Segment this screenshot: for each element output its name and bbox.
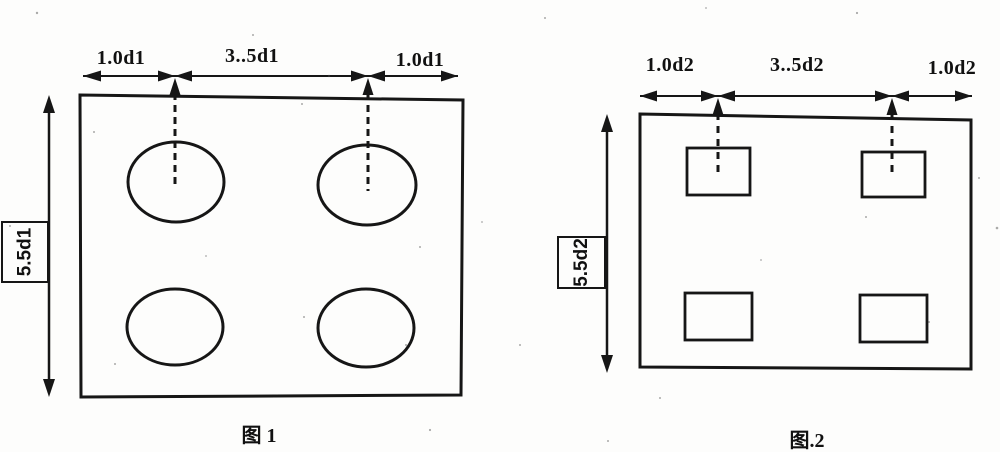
figure2-dim-top-left-label: 1.0d2 xyxy=(646,54,695,76)
arrowhead-left-icon xyxy=(892,91,909,102)
arrowhead-up-icon xyxy=(170,78,181,95)
arrowhead-left-icon xyxy=(640,91,657,102)
figure2-hole-bottom-left xyxy=(685,293,752,340)
arrowhead-up-icon xyxy=(713,98,724,115)
arrowhead-right-icon xyxy=(158,71,175,82)
arrowhead-down-icon xyxy=(43,379,55,397)
figure2-caption: 图.2 xyxy=(790,429,825,452)
figure1-side-dim-label: 5.5d1 xyxy=(15,227,36,276)
arrowhead-up-icon xyxy=(43,95,55,113)
figure-1: 1.0d1 3..5d1 1.0d1 5.5d1 图 1 xyxy=(2,45,463,447)
arrowhead-right-icon xyxy=(875,91,892,102)
drawing-canvas: 1.0d1 3..5d1 1.0d1 5.5d1 图 1 xyxy=(0,0,1000,452)
arrowhead-down-icon xyxy=(601,355,613,373)
arrowhead-left-icon xyxy=(368,71,385,82)
scan-noise-specks xyxy=(9,7,998,442)
arrowhead-left-icon xyxy=(718,91,735,102)
arrowhead-right-icon xyxy=(701,91,718,102)
figure1-hole-bottom-left xyxy=(127,289,223,365)
figure1-hole-bottom-right xyxy=(318,289,414,367)
arrowhead-up-icon xyxy=(601,114,613,132)
arrowhead-up-icon xyxy=(887,98,898,115)
figure2-dim-top-middle-label: 3..5d2 xyxy=(770,54,824,76)
arrowhead-left-icon xyxy=(175,71,192,82)
figure2-hole-bottom-right xyxy=(860,295,927,342)
arrowhead-up-icon xyxy=(363,78,374,95)
scanned-patent-drawing: 1.0d1 3..5d1 1.0d1 5.5d1 图 1 xyxy=(0,0,1000,452)
figure1-dim-top-left-label: 1.0d1 xyxy=(97,47,146,69)
figure2-dim-top-right-label: 1.0d2 xyxy=(928,57,977,79)
arrowhead-left-icon xyxy=(83,71,101,82)
figure1-caption: 图 1 xyxy=(242,424,277,447)
figure2-side-dim-label: 5.5d2 xyxy=(571,238,592,287)
arrowhead-right-icon xyxy=(441,71,458,82)
figure-2: 1.0d2 3..5d2 1.0d2 5.5d2 图.2 xyxy=(558,54,976,452)
figure1-dim-top-right-label: 1.0d1 xyxy=(396,49,445,71)
arrowhead-right-icon xyxy=(955,91,972,102)
figure1-dim-top-middle-label: 3..5d1 xyxy=(225,45,279,67)
arrowhead-right-icon xyxy=(351,71,368,82)
